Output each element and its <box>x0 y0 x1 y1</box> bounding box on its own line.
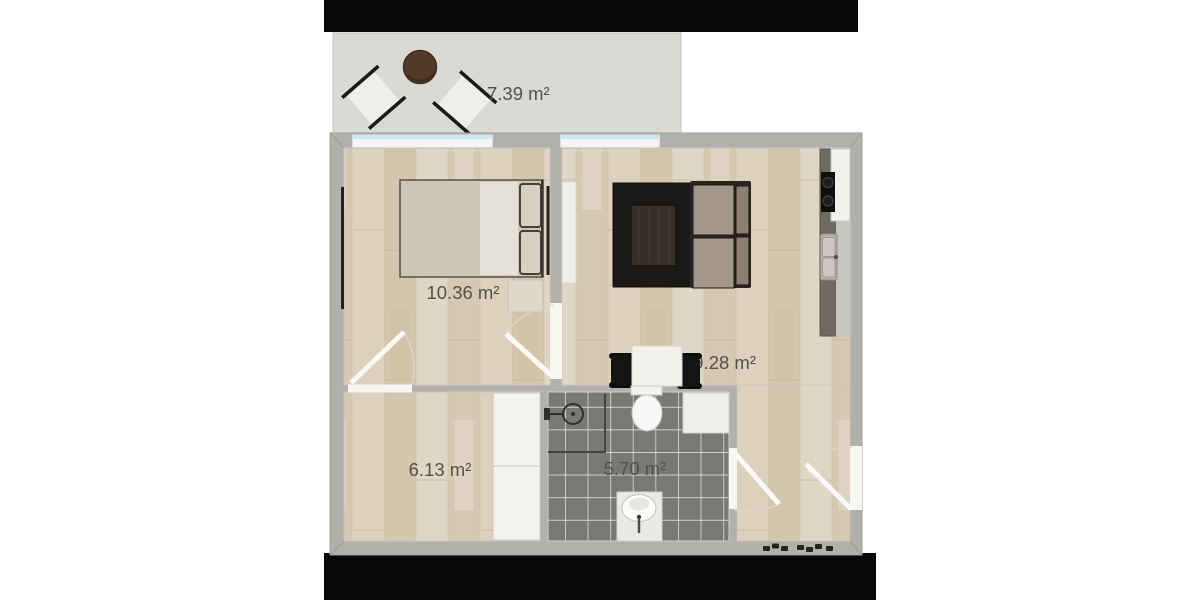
double-bed <box>400 180 544 277</box>
balcony-table <box>404 51 437 84</box>
dining-chair <box>609 353 634 388</box>
sofa-cushion <box>693 185 734 235</box>
sofa <box>690 181 751 288</box>
shower-fitting <box>544 408 550 420</box>
bedroom-area-label: 10.36 m² <box>426 282 499 303</box>
balcony-area-label: 7.39 m² <box>487 83 550 104</box>
coffee-table <box>631 205 676 266</box>
dining-table <box>632 346 682 386</box>
washbasin <box>617 492 662 541</box>
pillow <box>520 231 541 274</box>
kitchen-sink <box>821 234 839 280</box>
living-room-window <box>560 135 660 149</box>
room-balcony: 7.39 m² <box>333 33 681 134</box>
cooktop <box>821 172 835 212</box>
drain <box>637 515 641 519</box>
faucet <box>834 255 838 259</box>
bedroom-window <box>352 135 493 149</box>
shelf <box>562 182 576 283</box>
entry-corridor-floor <box>737 385 850 541</box>
floor-plan-screenshot: 7.39 m² <box>0 0 1200 600</box>
kitchen <box>820 149 850 336</box>
letterbox-top <box>324 0 858 32</box>
radiator <box>341 187 344 309</box>
bathroom-area-label: 5.70 m² <box>604 458 667 479</box>
floor-plan-image: 7.39 m² <box>0 0 1200 600</box>
sofa-pillow <box>736 186 749 234</box>
sofa-pillow <box>736 237 749 285</box>
hallway-area-label: 6.13 m² <box>409 459 472 480</box>
headboard <box>541 180 544 277</box>
toilet <box>631 386 662 431</box>
bathroom-cabinet <box>683 393 729 433</box>
letterbox-bottom <box>324 553 876 600</box>
sofa-cushion <box>693 238 734 288</box>
pillow <box>520 184 541 227</box>
wardrobe <box>493 393 540 540</box>
nightstand <box>508 280 543 312</box>
radiator <box>547 186 550 275</box>
